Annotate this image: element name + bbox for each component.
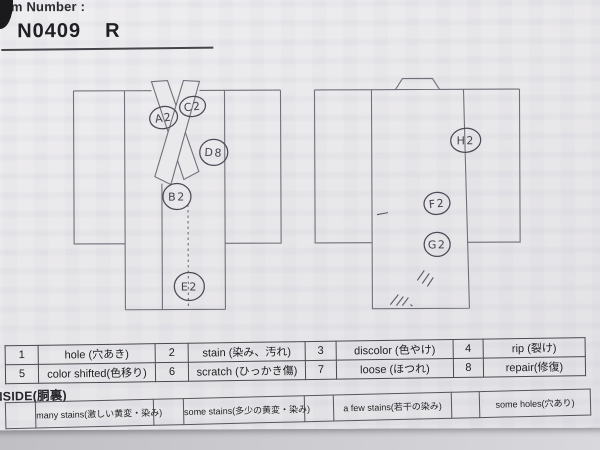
legend-label: scratch (ひっかき傷) <box>188 361 305 382</box>
legend-label: discolor (色やけ) <box>336 340 453 361</box>
legend-label: loose (ほつれ) <box>336 359 453 380</box>
legend-table: 1 hole (穴あき) 2 stain (染み、汚れ) 3 discolor … <box>5 337 586 384</box>
legend-code: 4 <box>453 339 483 358</box>
annotation-label: B2 <box>168 190 186 203</box>
legend-code: 8 <box>453 358 483 377</box>
front-overlap-line <box>162 184 163 310</box>
legend-label: color shifted(色移り) <box>38 363 155 384</box>
front-right-sleeve <box>224 90 281 243</box>
annotation-label: D8 <box>204 146 223 160</box>
annotation-label: F2 <box>428 197 446 212</box>
inside-checkbox-cell <box>451 392 480 419</box>
annotation-label: C2 <box>183 100 202 115</box>
legend-label: rip (裂け) <box>483 338 585 358</box>
back-collar <box>395 78 439 89</box>
back-left-sleeve <box>314 90 372 243</box>
legend-label: repair(修復) <box>483 357 585 377</box>
annotation-label: A2 <box>154 110 173 125</box>
inside-option-label: some holes(穴あり) <box>479 389 591 418</box>
inside-option-label: a few stains(若干の染み) <box>333 392 452 421</box>
photo-background: Item Number : N0409R <box>0 0 600 450</box>
back-pencil-dash <box>377 213 388 215</box>
inspection-sheet-paper: Item Number : N0409R <box>0 0 600 430</box>
annotation-label: G2 <box>428 238 447 251</box>
legend-code: 3 <box>305 341 336 360</box>
inside-option-label: some stains(多少の黄変・染み) <box>183 396 305 425</box>
back-right-sleeve <box>466 89 520 242</box>
legend-code: 2 <box>155 343 188 362</box>
annotation-label: E2 <box>181 280 198 293</box>
annotation-label: H2 <box>457 134 475 147</box>
legend-code: 7 <box>305 360 336 379</box>
front-shoulder-line <box>73 90 280 91</box>
inside-option-label: many stains(激しい黄変・染み) <box>35 399 154 428</box>
legend-code: 1 <box>5 345 38 364</box>
legend-label: stain (染み、汚れ) <box>188 342 305 363</box>
inside-checkbox-cell <box>5 402 36 429</box>
legend-label: hole (穴あき) <box>38 344 155 365</box>
front-left-sleeve <box>73 91 125 244</box>
kimono-back-outline <box>314 78 520 309</box>
legend-code: 6 <box>155 362 188 381</box>
back-scratch-marks <box>390 270 433 306</box>
legend-code: 5 <box>5 364 38 383</box>
